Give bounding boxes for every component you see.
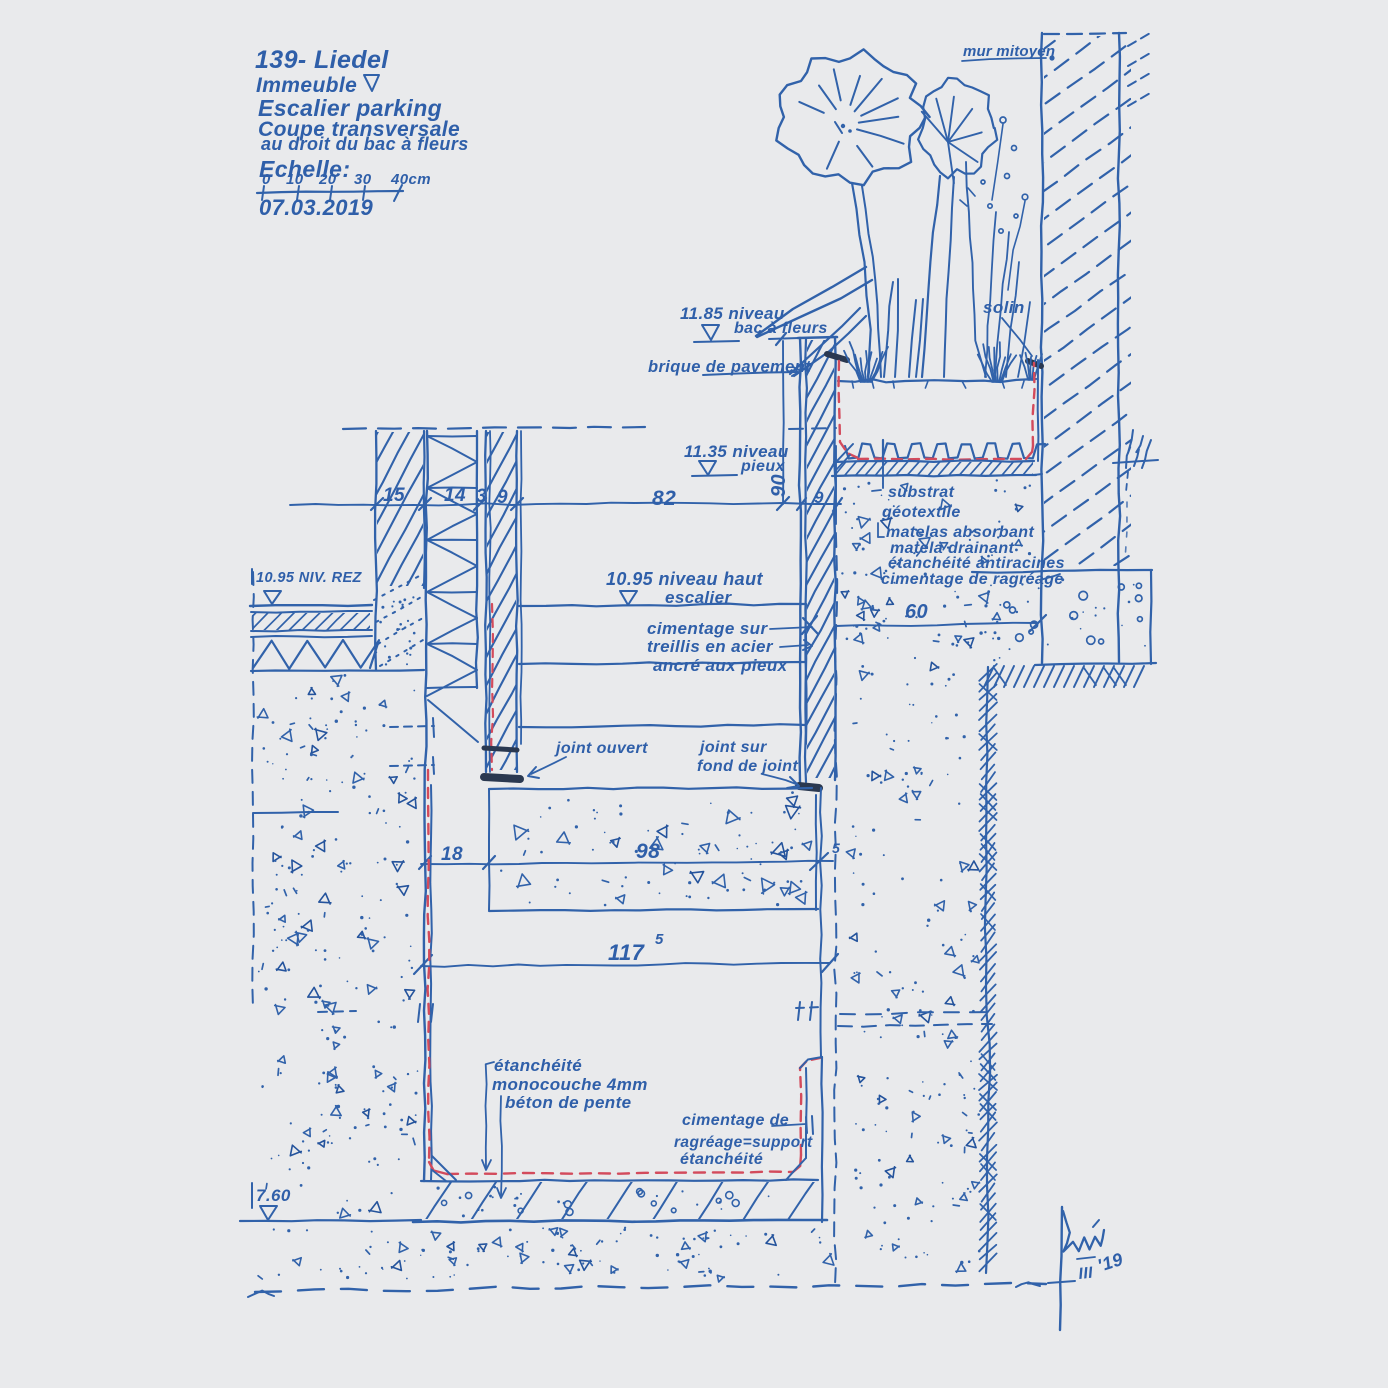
svg-text:40cm: 40cm xyxy=(390,171,431,188)
svg-text:bac à fleurs: bac à fleurs xyxy=(734,320,828,337)
svg-text:9: 9 xyxy=(814,488,824,507)
svg-text:10.95 NIV. REZ: 10.95 NIV. REZ xyxy=(256,570,363,586)
svg-text:5: 5 xyxy=(655,931,664,948)
svg-text:cimentage de ragréage: cimentage de ragréage xyxy=(881,571,1064,588)
svg-text:82: 82 xyxy=(652,487,676,510)
svg-text:matelas absorbant: matelas absorbant xyxy=(886,524,1034,541)
svg-text:étanchéité antiracines: étanchéité antiracines xyxy=(888,555,1065,572)
svg-text:solin: solin xyxy=(983,298,1025,317)
svg-text:joint sur: joint sur xyxy=(698,739,767,756)
svg-text:98: 98 xyxy=(636,840,660,863)
svg-text:20: 20 xyxy=(318,171,337,188)
svg-text:étanchéité: étanchéité xyxy=(494,1056,582,1075)
svg-text:cimentage sur: cimentage sur xyxy=(647,619,768,638)
svg-text:07.03.2019: 07.03.2019 xyxy=(259,195,373,220)
svg-text:substrat: substrat xyxy=(888,484,955,501)
svg-text:au droit du bac à fleurs: au droit du bac à fleurs xyxy=(261,134,469,154)
svg-text:joint ouvert: joint ouvert xyxy=(554,740,648,757)
svg-text:treillis en acier: treillis en acier xyxy=(647,637,774,656)
svg-text:béton de pente: béton de pente xyxy=(505,1093,632,1112)
svg-text:60: 60 xyxy=(905,601,928,623)
svg-text:ragréage=support: ragréage=support xyxy=(674,1134,813,1151)
svg-text:Immeuble: Immeuble xyxy=(256,74,357,97)
svg-text:pieux: pieux xyxy=(740,458,785,475)
svg-text:7.60: 7.60 xyxy=(256,1186,291,1205)
svg-text:18: 18 xyxy=(441,844,463,865)
svg-text:90: 90 xyxy=(768,474,790,497)
svg-text:étanchéité: étanchéité xyxy=(680,1151,763,1168)
svg-text:ancré aux pieux: ancré aux pieux xyxy=(653,656,789,675)
svg-text:117: 117 xyxy=(608,940,646,965)
svg-text:30: 30 xyxy=(354,171,372,188)
svg-text:5: 5 xyxy=(832,840,840,856)
svg-text:10: 10 xyxy=(286,171,304,188)
svg-text:139- Liedel: 139- Liedel xyxy=(255,46,389,74)
svg-text:fond de joint: fond de joint xyxy=(697,758,798,775)
svg-text:Echelle:: Echelle: xyxy=(259,156,350,182)
svg-text:10.95 niveau haut: 10.95 niveau haut xyxy=(606,569,763,589)
svg-text:III: III xyxy=(1078,1265,1094,1283)
svg-text:monocouche 4mm: monocouche 4mm xyxy=(492,1075,648,1094)
